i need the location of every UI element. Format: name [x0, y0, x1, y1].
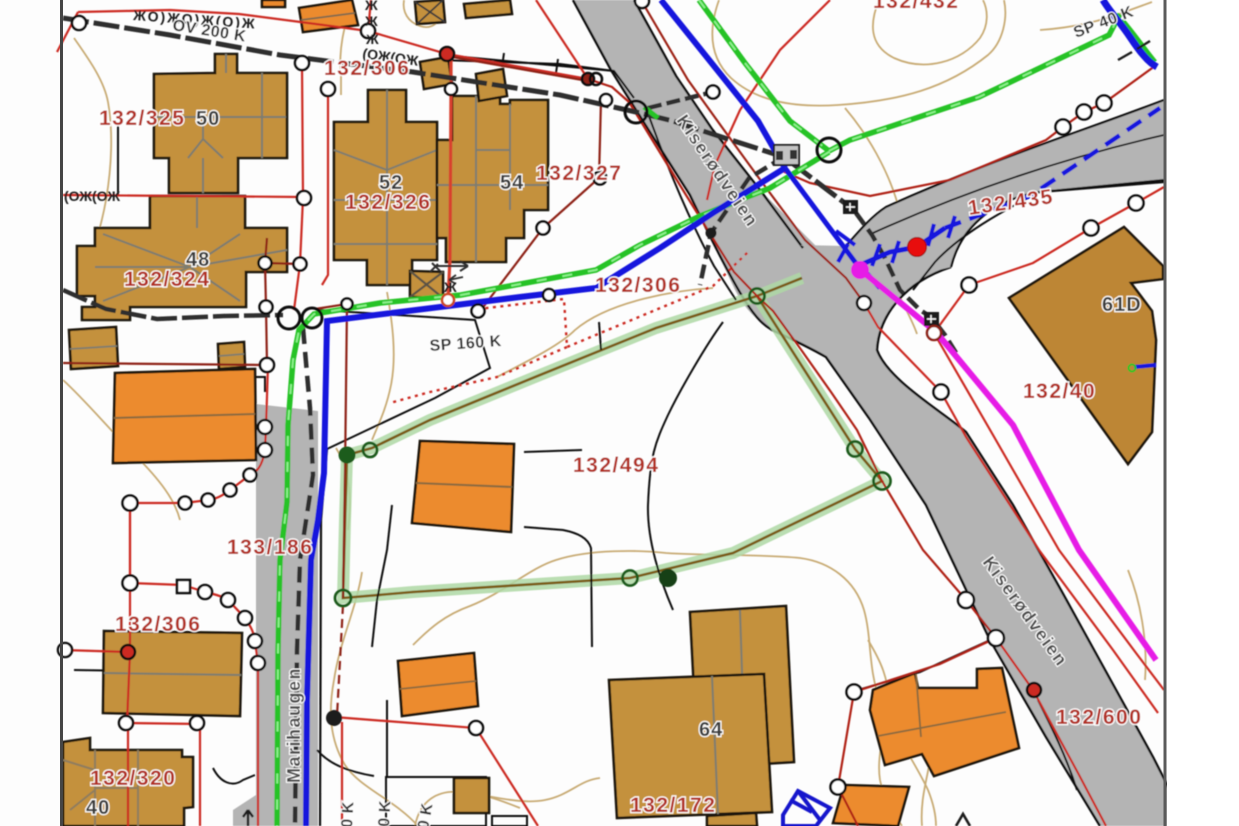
svg-text:Ж: Ж [365, 31, 379, 47]
svg-text:133/186: 133/186 [227, 536, 313, 559]
svg-text:48: 48 [186, 249, 210, 271]
svg-text:132/327: 132/327 [536, 162, 622, 185]
svg-text:61D: 61D [1102, 294, 1142, 316]
svg-text:0 K: 0 K [415, 802, 436, 826]
svg-text:132/172: 132/172 [630, 794, 716, 817]
svg-text:Ж: Ж [364, 13, 378, 29]
svg-text:132/494: 132/494 [573, 454, 659, 477]
svg-text:132/306: 132/306 [324, 57, 410, 80]
svg-text:Ж: Ж [364, 0, 378, 13]
svg-text:(ОЖ(ОЖ: (ОЖ(ОЖ [64, 188, 120, 204]
svg-text:52: 52 [379, 172, 403, 194]
svg-text:64: 64 [699, 719, 723, 741]
svg-text:132/306: 132/306 [595, 274, 681, 297]
svg-text:132/320: 132/320 [90, 767, 176, 790]
svg-text:132/324: 132/324 [124, 268, 210, 291]
svg-text:54: 54 [500, 172, 524, 194]
svg-text:Marihaugen: Marihaugen [284, 667, 304, 783]
svg-text:132/40: 132/40 [1023, 380, 1096, 403]
svg-text:132/306: 132/306 [115, 613, 201, 636]
svg-text:132/326: 132/326 [345, 191, 431, 214]
svg-text:132/600: 132/600 [1056, 706, 1142, 729]
svg-text:50: 50 [196, 108, 220, 130]
svg-text:132/432: 132/432 [873, 0, 959, 13]
svg-text:Ж: Ж [443, 279, 457, 295]
svg-text:132/325: 132/325 [99, 107, 185, 130]
svg-text:0 K: 0 K [339, 801, 357, 826]
svg-text:0 K: 0 K [376, 800, 394, 826]
svg-text:40: 40 [86, 797, 110, 819]
